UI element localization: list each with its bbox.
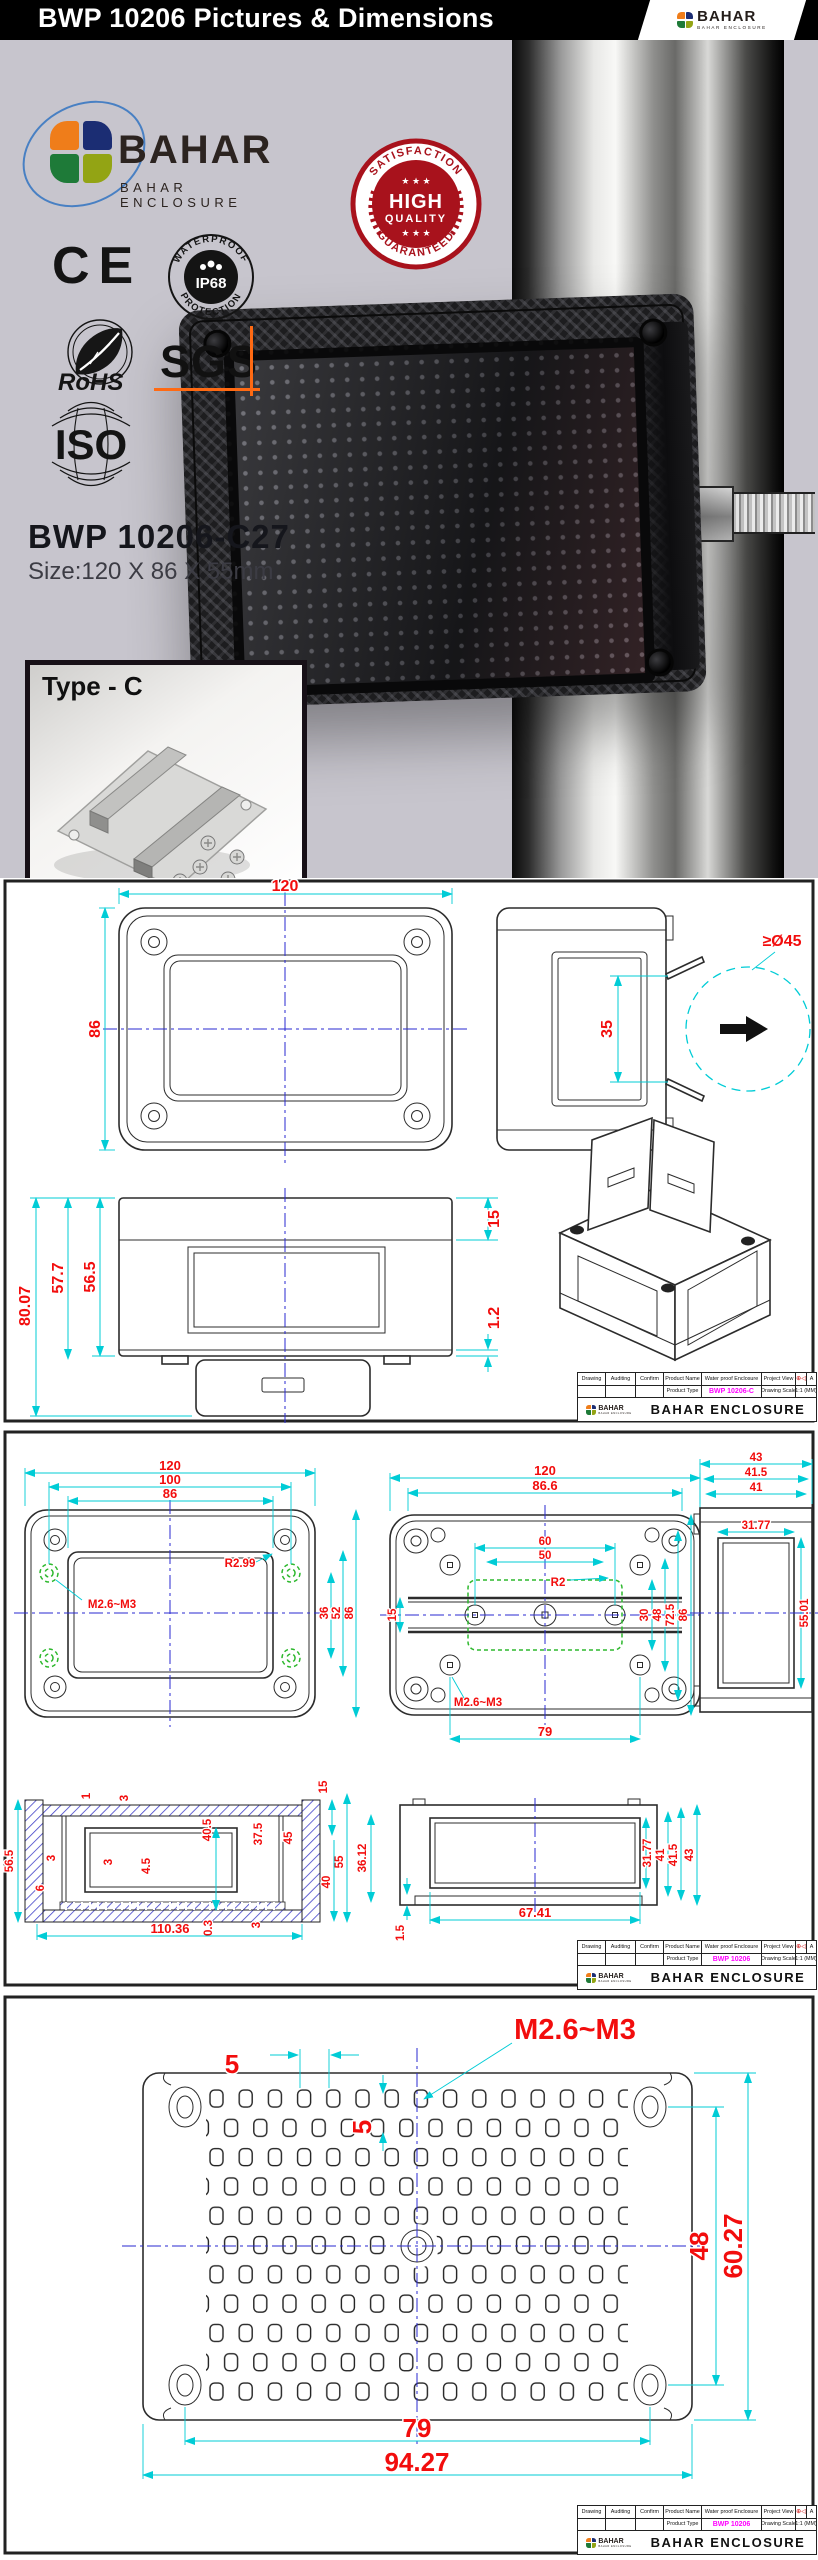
sgs-crossline	[250, 326, 253, 396]
title-block-3: Drawing Auditing Confirm Product Name Wa…	[577, 2505, 817, 2555]
product-code: BWP 10206-C27	[28, 518, 290, 556]
dim-label: 50	[539, 1550, 552, 1562]
tb-product-name-value: Water proof Enclosure	[702, 1373, 762, 1385]
dim-label: 94.27	[384, 2447, 449, 2477]
dim-label: 5	[225, 2049, 239, 2079]
dim-label: 40.5	[202, 1818, 214, 1841]
dim-label: 3	[46, 1855, 58, 1861]
tb-confirm: Confirm	[636, 1941, 664, 1953]
dim-label: 72.5	[665, 1603, 677, 1626]
dim-label: 60.27	[718, 2213, 748, 2278]
brand-subtitle: BAHAR ENCLOSURE	[120, 180, 290, 210]
dim-label: 52	[331, 1607, 343, 1620]
dim-label: 86	[678, 1609, 690, 1622]
badge-line2: QUALITY	[385, 213, 447, 225]
enclosure-glass-reflection	[234, 347, 645, 687]
tb-revision: A	[807, 1373, 816, 1385]
header-bar: BWP 10206 Pictures & Dimensions BAHAR BA…	[0, 0, 818, 40]
dim-label: 48	[684, 2232, 714, 2261]
projection-symbol-icon: ⊕◁	[796, 2506, 807, 2518]
dim-label: 15	[318, 1780, 330, 1793]
iso-text: ISO	[55, 421, 127, 468]
rohs-icon: RoHS	[42, 316, 164, 398]
dim-label: 31.77	[742, 1520, 771, 1532]
tb-company-name: BAHAR ENCLOSURE	[640, 1402, 816, 1417]
bahar-logo-icon	[50, 121, 112, 183]
ce-mark-icon: CE	[52, 236, 142, 296]
tb-drawing: Drawing	[578, 1373, 606, 1385]
dim-label: 80.07	[17, 1286, 34, 1326]
dim-label: 100	[159, 1472, 181, 1487]
dim-label: 30	[639, 1609, 651, 1622]
header-logo-flag: BAHAR BAHAR ENCLOSURE	[638, 0, 806, 40]
tb-revision: A	[807, 1941, 816, 1953]
titleblock-logo: BAHAR BAHAR ENCLOSURE	[578, 1398, 640, 1421]
tb-drawing-scale-label: Drawing Scale	[762, 1954, 796, 1966]
tb-product-type-label: Product Type	[664, 2519, 702, 2531]
ip68-center-text: IP68	[196, 275, 227, 292]
product-sheet-page: BWP 10206 Pictures & Dimensions BAHAR BA…	[0, 0, 818, 2560]
dim-label: 120	[534, 1463, 556, 1478]
tb-drawing-scale-label: Drawing Scale	[762, 1386, 796, 1398]
header-brand-sub: BAHAR ENCLOSURE	[697, 26, 767, 31]
dim-label: 15	[387, 1608, 399, 1621]
product-size: Size:120 X 86 X 55mm	[28, 558, 273, 586]
product-photo-section: BAHAR BAHAR ENCLOSURE CE WATERPROOF PROT…	[0, 40, 818, 878]
dim-label: 60	[539, 1536, 552, 1548]
rohs-text: RoHS	[58, 369, 123, 396]
dim-label: 31.77	[642, 1839, 654, 1868]
dim-label: 40	[321, 1876, 333, 1889]
page-title: BWP 10206 Pictures & Dimensions	[38, 3, 494, 34]
titleblock-logo: BAHAR BAHAR ENCLOSURE	[578, 1966, 640, 1989]
tb-auditing: Auditing	[606, 1373, 636, 1385]
dim-label: 6	[35, 1885, 47, 1891]
sgs-text: SGS	[160, 336, 258, 387]
tb-project-view: Project View	[762, 1373, 796, 1385]
tb-drawing: Drawing	[578, 2506, 606, 2518]
dim-label: 3	[103, 1859, 115, 1865]
tb-product-type-label: Product Type	[664, 1386, 702, 1398]
tb-product-name-label: Product Name	[664, 1941, 702, 1953]
dim-label: 120	[272, 878, 299, 895]
dim-label: 55	[334, 1855, 346, 1868]
badge-line1: HIGH	[389, 191, 443, 213]
tb-project-view: Project View	[762, 1941, 796, 1953]
tb-product-type-label: Product Type	[664, 1954, 702, 1966]
dim-label: 86.6	[532, 1478, 557, 1493]
dim-label: 48	[652, 1608, 664, 1621]
dim-label: 4.5	[141, 1857, 153, 1874]
tb-product-name-value: Water proof Enclosure	[702, 2506, 762, 2518]
thread-label: M2.6~M3	[88, 1599, 136, 1611]
dim-label: 45	[283, 1831, 295, 1844]
tb-product-type-value: BWP 10206	[702, 1954, 762, 1966]
dim-label: 36	[319, 1607, 331, 1620]
type-c-label: Type - C	[42, 671, 143, 702]
tb-drawing-scale-value: 1:1 (MM)	[796, 1954, 816, 1966]
dim-label: 1	[81, 1792, 93, 1799]
dim-label: R2	[551, 1577, 566, 1589]
dim-label: 110.36	[150, 1921, 189, 1936]
bahar-logo-icon	[677, 12, 693, 28]
dim-label: 86	[344, 1607, 356, 1620]
dim-label: 67.41	[519, 1905, 552, 1920]
tb-product-name-value: Water proof Enclosure	[702, 1941, 762, 1953]
tb-drawing: Drawing	[578, 1941, 606, 1953]
tb-confirm: Confirm	[636, 1373, 664, 1385]
titleblock-logo: BAHAR BAHAR ENCLOSURE	[578, 2531, 640, 2554]
dim-label: 79	[538, 1724, 552, 1739]
dim-label: 1.5	[395, 1924, 407, 1941]
dim-label: 41.5	[745, 1467, 768, 1479]
projection-symbol-icon: ⊕◁	[796, 1373, 807, 1385]
d3-mounting-plate-view: 5 5 M2.6~M3 48 60.27 79 94.27	[122, 2014, 756, 2479]
title-block-2: Drawing Auditing Confirm Product Name Wa…	[577, 1940, 817, 1990]
dim-label: 1.2	[486, 1307, 503, 1329]
tb-auditing: Auditing	[606, 1941, 636, 1953]
dim-label: 56.5	[82, 1261, 99, 1292]
dim-label: 43	[750, 1452, 763, 1464]
sgs-underline	[154, 388, 260, 391]
d1-top-view: 120 86	[87, 878, 467, 1163]
dim-label: 86	[87, 1020, 104, 1038]
bracket-photo	[30, 713, 292, 878]
tb-drawing-scale-value: 1:1 (MM)	[796, 1386, 816, 1398]
dim-label: 15	[486, 1210, 503, 1228]
dim-label: 43	[684, 1849, 696, 1862]
tb-company-name: BAHAR ENCLOSURE	[640, 2535, 816, 2550]
tb-product-name-label: Product Name	[664, 1373, 702, 1385]
drawing-sheet-2: 120 100 86 36 52 86 R2.99 M2.6~M3	[0, 1430, 818, 1988]
brand-name: BAHAR	[118, 128, 272, 173]
badge-stars-top: ★ ★ ★	[401, 176, 430, 186]
dim-label: 36.12	[357, 1844, 369, 1873]
dim-label: 41.5	[668, 1843, 680, 1866]
iso-icon: ISO	[40, 400, 142, 488]
dim-label: 41	[750, 1482, 763, 1494]
dim-label: 3	[251, 1922, 263, 1928]
ip68-waterproof-icon: WATERPROOF PROTECTION IP68	[163, 226, 259, 328]
badge-stars-bottom: ★ ★ ★	[401, 228, 430, 238]
sgs-icon: SGS	[160, 336, 270, 400]
drawing-sheet-3: 5 5 M2.6~M3 48 60.27 79 94.27	[0, 1993, 818, 2560]
projection-symbol-icon: ⊕◁	[796, 1941, 807, 1953]
thread-label: M2.6~M3	[454, 1697, 502, 1709]
dim-label: 57.7	[50, 1262, 67, 1293]
dim-label: ≥Ø45	[762, 933, 801, 950]
tb-confirm: Confirm	[636, 2506, 664, 2518]
tb-product-type-value: BWP 10206	[702, 2519, 762, 2531]
dim-label: R2.99	[225, 1558, 256, 1570]
dim-label: 79	[403, 2413, 432, 2443]
header-brand-name: BAHAR	[697, 9, 767, 24]
dim-label: 56.5	[4, 1849, 16, 1872]
dim-label: 35	[599, 1020, 616, 1038]
dim-label: 0.3	[203, 1920, 215, 1936]
tb-drawing-scale-value: 1:1 (MM)	[796, 2519, 816, 2531]
dim-label: 5	[347, 2120, 377, 2134]
drawing-sheet-1: 120 86 ≥Ø45 35	[0, 878, 818, 1424]
tb-company-name: BAHAR ENCLOSURE	[640, 1970, 816, 1985]
brand-logo-block: BAHAR BAHAR ENCLOSURE	[30, 106, 290, 214]
type-c-inset: Type - C	[25, 660, 307, 878]
tb-product-name-label: Product Name	[664, 2506, 702, 2518]
title-block-1: Drawing Auditing Confirm Product Name Wa…	[577, 1372, 817, 1422]
thread-label: M2.6~M3	[514, 2014, 636, 2046]
tb-auditing: Auditing	[606, 2506, 636, 2518]
tb-drawing-scale-label: Drawing Scale	[762, 2519, 796, 2531]
dim-label: 120	[159, 1458, 181, 1473]
tb-product-type-value: BWP 10206-C	[702, 1386, 762, 1398]
tb-revision: A	[807, 2506, 816, 2518]
dim-label: 37.5	[253, 1822, 265, 1845]
dim-label: 55.01	[799, 1598, 811, 1627]
tb-project-view: Project View	[762, 2506, 796, 2518]
quality-badge: SATISFACTION GUARANTEED ★ ★ ★ HIGH QUALI…	[348, 136, 484, 272]
dim-label: 3	[119, 1795, 131, 1801]
dim-label: 86	[163, 1486, 177, 1501]
dim-label: 41	[655, 1848, 667, 1861]
